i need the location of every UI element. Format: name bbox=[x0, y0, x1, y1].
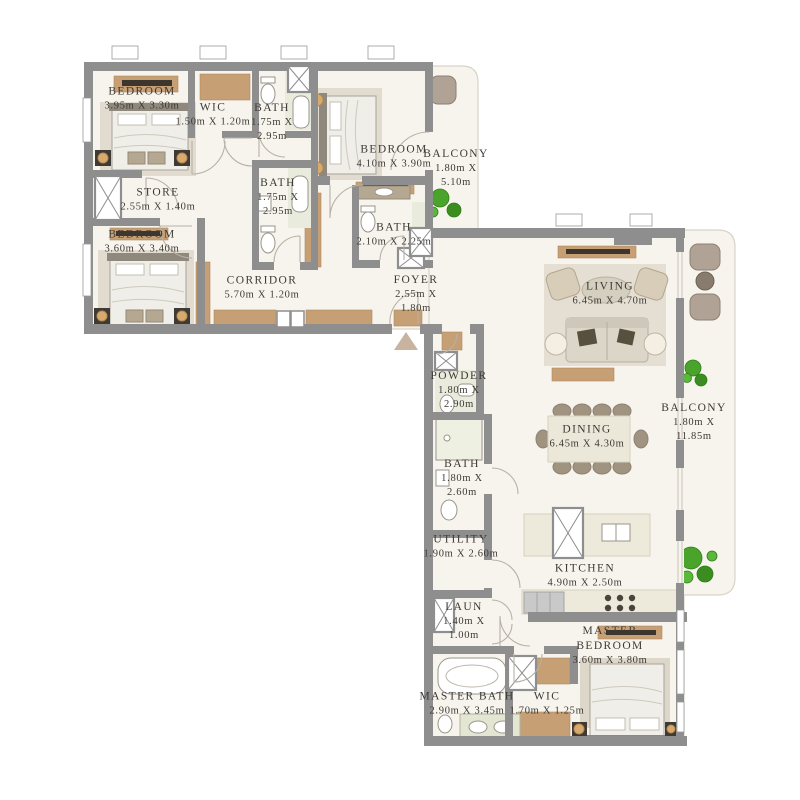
master-toilet-icon bbox=[438, 715, 452, 733]
dining-sideboard bbox=[552, 368, 614, 381]
side-table-icon bbox=[545, 333, 567, 355]
bath4-shower bbox=[436, 418, 482, 460]
kitchen-island bbox=[524, 514, 650, 556]
balcony-chair-icon bbox=[690, 244, 720, 270]
corridor-double-door bbox=[277, 311, 304, 327]
corridor-wood-floor bbox=[214, 310, 276, 326]
floor-plan-drawing bbox=[0, 0, 800, 800]
corridor-wood-floor bbox=[306, 310, 372, 326]
wic-master-wardrobe bbox=[518, 712, 570, 740]
balcony-chair-icon bbox=[690, 294, 720, 320]
dining-table-icon bbox=[548, 416, 630, 462]
fridge-icon bbox=[524, 592, 564, 613]
balcony-chair-icon bbox=[430, 76, 456, 104]
sofa-icon bbox=[566, 318, 648, 362]
bed-bedroom-2-icon bbox=[311, 93, 376, 177]
coffee-table-icon bbox=[582, 277, 630, 303]
floor-plan-canvas: BEDROOM3.95m X 3.30m WIC1.50m X 1.20m BA… bbox=[0, 0, 800, 800]
master-tub-icon bbox=[438, 658, 506, 694]
side-table-icon bbox=[644, 333, 666, 355]
wic-wardrobe bbox=[200, 74, 250, 100]
balcony-table-icon bbox=[696, 272, 714, 290]
entry-arrow-icon bbox=[394, 332, 418, 350]
